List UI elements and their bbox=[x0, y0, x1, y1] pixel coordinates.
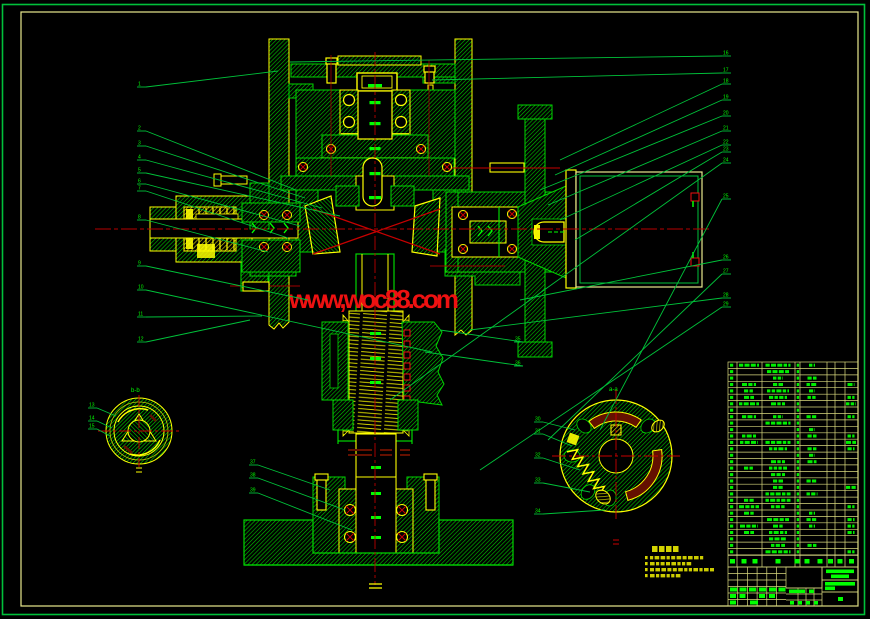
svg-text:23: 23 bbox=[723, 147, 729, 153]
svg-text:17: 17 bbox=[723, 68, 729, 74]
svg-text:18: 18 bbox=[723, 79, 729, 85]
svg-text:8: 8 bbox=[138, 215, 141, 221]
svg-text:12: 12 bbox=[138, 337, 144, 343]
svg-text:27: 27 bbox=[723, 269, 729, 275]
svg-text:30: 30 bbox=[535, 417, 541, 423]
svg-text:b-b: b-b bbox=[131, 388, 140, 394]
svg-text:37: 37 bbox=[250, 460, 256, 466]
svg-text:2: 2 bbox=[138, 126, 141, 132]
svg-text:9: 9 bbox=[138, 261, 141, 267]
svg-text:34: 34 bbox=[535, 509, 541, 515]
svg-text:a-a: a-a bbox=[609, 387, 618, 393]
svg-text:16: 16 bbox=[723, 51, 729, 57]
svg-text:38: 38 bbox=[250, 473, 256, 479]
svg-text:13: 13 bbox=[89, 403, 95, 409]
svg-text:11: 11 bbox=[138, 312, 143, 318]
svg-text:14: 14 bbox=[89, 416, 95, 422]
svg-text:3: 3 bbox=[138, 141, 141, 147]
svg-text:4: 4 bbox=[138, 155, 141, 161]
svg-text:6: 6 bbox=[138, 179, 141, 185]
svg-text:5: 5 bbox=[138, 168, 141, 174]
svg-text:39: 39 bbox=[250, 488, 256, 494]
svg-text:www,woc88.com: www,woc88.com bbox=[288, 284, 459, 314]
svg-text:25: 25 bbox=[723, 194, 729, 200]
svg-text:24: 24 bbox=[723, 158, 729, 164]
svg-text:21: 21 bbox=[723, 126, 729, 132]
svg-text:29: 29 bbox=[723, 302, 729, 308]
svg-text:36: 36 bbox=[515, 361, 521, 367]
svg-text:20: 20 bbox=[723, 111, 729, 117]
svg-text:35: 35 bbox=[515, 337, 521, 343]
svg-text:28: 28 bbox=[723, 293, 729, 299]
svg-text:32: 32 bbox=[535, 453, 541, 459]
svg-text:33: 33 bbox=[535, 478, 541, 484]
svg-text:22: 22 bbox=[723, 140, 729, 146]
svg-text:1: 1 bbox=[138, 82, 141, 88]
svg-text:10: 10 bbox=[138, 285, 144, 291]
svg-text:15: 15 bbox=[89, 424, 95, 430]
svg-text:19: 19 bbox=[723, 95, 729, 101]
svg-text:31: 31 bbox=[535, 429, 541, 435]
svg-text:7: 7 bbox=[138, 186, 141, 192]
svg-text:26: 26 bbox=[723, 255, 729, 261]
